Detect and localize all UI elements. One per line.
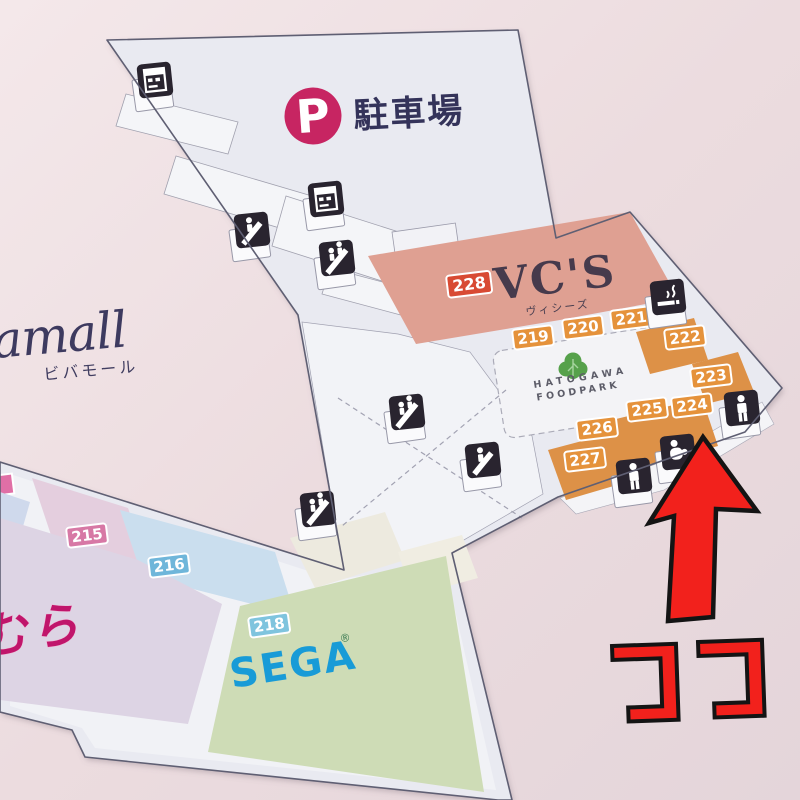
badge-228: 228 <box>446 271 492 298</box>
restroom-icon <box>719 389 761 440</box>
badge-222: 222 <box>664 325 706 350</box>
badge-215: 215 <box>66 523 108 548</box>
escalator-icon <box>229 211 271 262</box>
badge-227: 227 <box>564 447 606 472</box>
badge-225-number: 225 <box>630 399 663 421</box>
parking-label: 駐車場 <box>352 91 465 137</box>
badge-222-number: 222 <box>668 327 701 349</box>
badge-228-number: 228 <box>451 273 486 296</box>
badge-221: 221 <box>610 306 652 331</box>
vending-machine-icon <box>132 61 174 112</box>
badge-224-number: 224 <box>675 395 708 417</box>
vending-machine-icon <box>303 180 345 231</box>
stairs-icon <box>384 393 426 444</box>
store-sliver-pink <box>0 474 14 496</box>
parking-symbol: P <box>294 88 331 144</box>
badge-220-number: 220 <box>566 317 599 339</box>
escalator-icon <box>460 441 502 492</box>
badge-224: 224 <box>671 393 713 418</box>
restroom-icon <box>611 457 653 508</box>
stairs-icon <box>314 239 356 290</box>
badge-227-number: 227 <box>568 449 601 471</box>
badge-215-number: 215 <box>70 525 103 547</box>
badge-220: 220 <box>562 315 604 340</box>
badge-216: 216 <box>148 553 190 578</box>
badge-226: 226 <box>576 416 618 441</box>
badge-226-number: 226 <box>580 418 613 440</box>
badge-221-number: 221 <box>614 308 647 330</box>
badge-219: 219 <box>512 325 554 350</box>
badge-223: 223 <box>690 364 732 389</box>
mall-directory-map-photo: HATOGAWA FOODPARK P 駐車場 amall ビバモール VC'S… <box>0 0 800 800</box>
badge-216-number: 216 <box>152 555 185 577</box>
badge-225: 225 <box>626 397 668 422</box>
badge-218: 218 <box>248 612 290 637</box>
badge-219-number: 219 <box>516 327 549 349</box>
store-sega-reg-mark: ® <box>339 631 352 646</box>
badge-223-number: 223 <box>694 366 727 388</box>
smoking-area-icon <box>645 278 687 329</box>
